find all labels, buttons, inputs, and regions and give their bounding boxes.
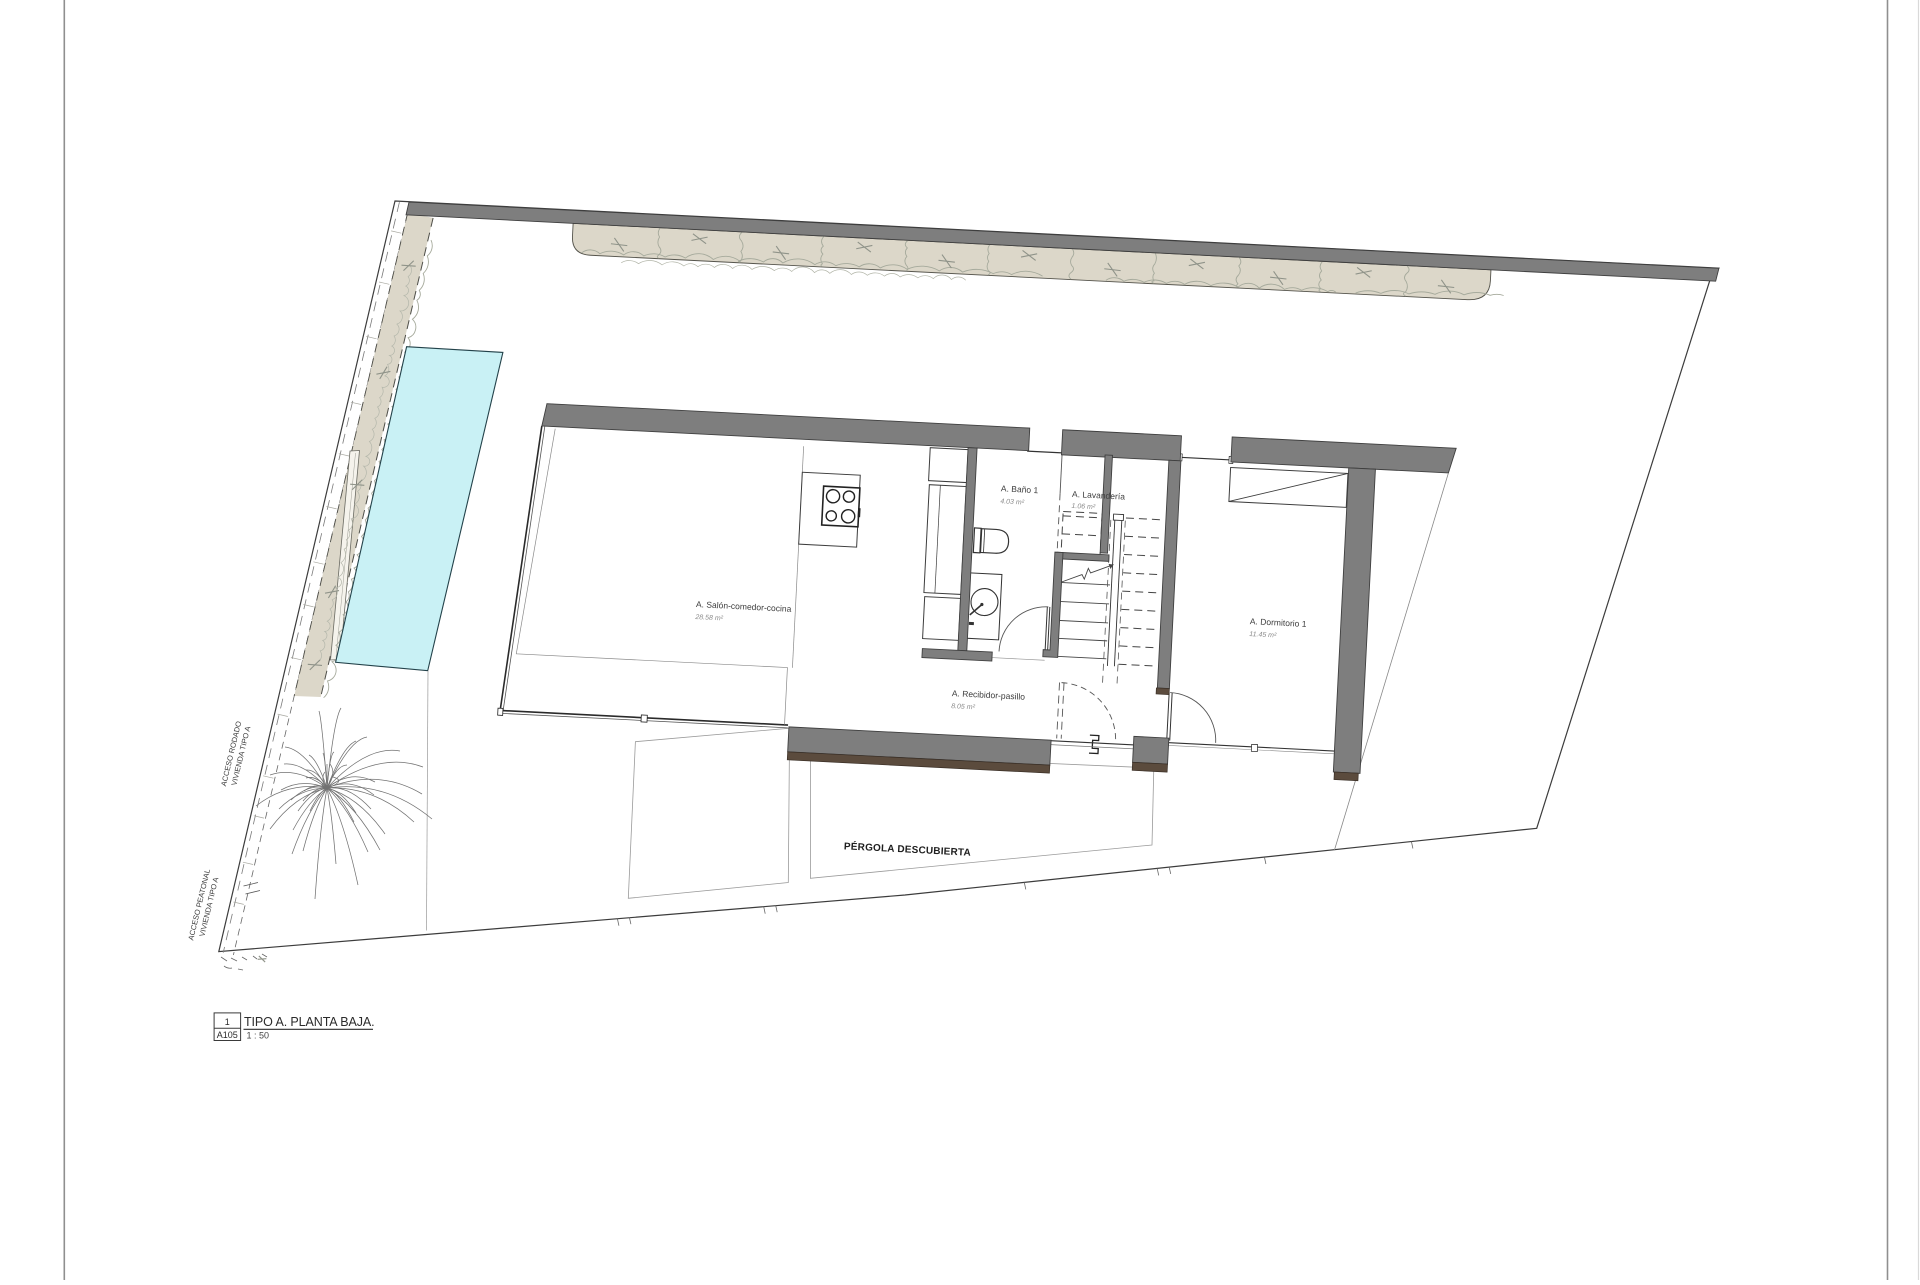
svg-text:TIPO A. PLANTA BAJA.: TIPO A. PLANTA BAJA. bbox=[244, 1015, 374, 1029]
svg-text:A105: A105 bbox=[217, 1030, 238, 1040]
svg-text:1.06 m²: 1.06 m² bbox=[1071, 503, 1096, 511]
svg-text:1: 1 bbox=[225, 1017, 230, 1027]
svg-text:4.03 m²: 4.03 m² bbox=[1000, 498, 1025, 506]
svg-text:11.45 m²: 11.45 m² bbox=[1249, 631, 1277, 639]
svg-text:28.58 m²: 28.58 m² bbox=[694, 614, 724, 622]
svg-text:8.05 m²: 8.05 m² bbox=[951, 703, 976, 711]
svg-text:A. Baño 1: A. Baño 1 bbox=[1001, 483, 1039, 495]
svg-text:1 : 50: 1 : 50 bbox=[247, 1031, 270, 1041]
